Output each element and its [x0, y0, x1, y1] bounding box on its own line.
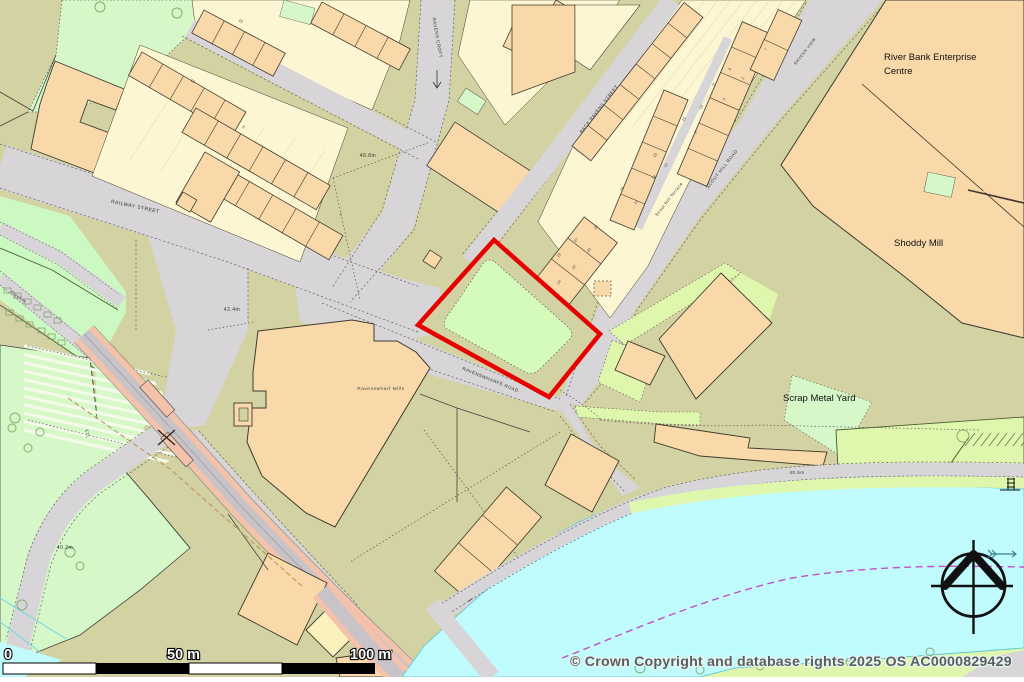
svg-text:50 m: 50 m	[167, 647, 200, 663]
svg-text:Centre: Centre	[884, 66, 913, 77]
svg-text:© Crown Copyright and database: © Crown Copyright and database rights 20…	[570, 654, 1012, 670]
svg-text:40.5m: 40.5m	[789, 470, 804, 475]
svg-text:River Bank Enterprise: River Bank Enterprise	[884, 52, 976, 63]
svg-text:42.4m: 42.4m	[224, 307, 240, 313]
svg-text:Scrap Metal Yard: Scrap Metal Yard	[783, 393, 856, 404]
svg-text:100 m: 100 m	[350, 647, 391, 663]
svg-text:40.2m: 40.2m	[57, 545, 73, 551]
svg-text:0: 0	[4, 647, 12, 663]
svg-text:46.8m: 46.8m	[360, 153, 376, 159]
svg-text:Shoddy Mill: Shoddy Mill	[894, 238, 943, 249]
svg-text:Ravenswharf Mills: Ravenswharf Mills	[357, 386, 405, 392]
